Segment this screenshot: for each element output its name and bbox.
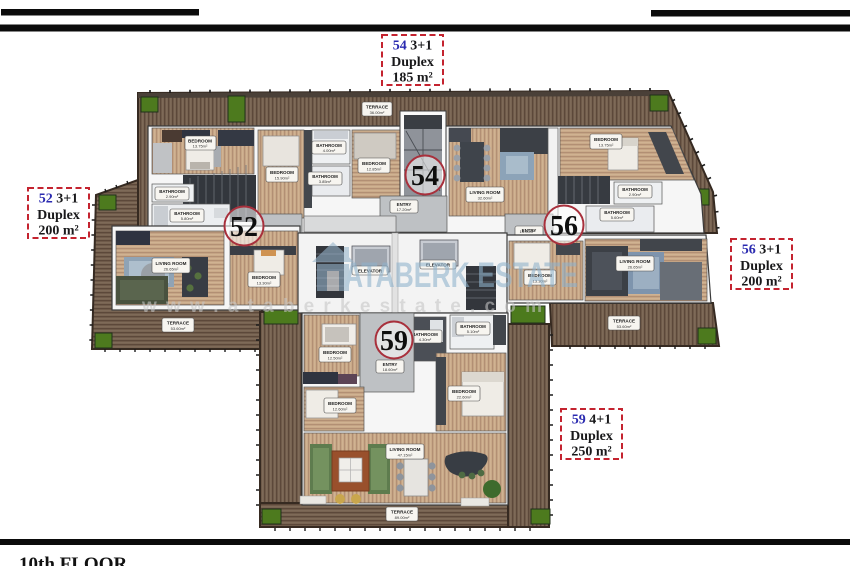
svg-text:12.50m²: 12.50m² [328, 356, 343, 361]
svg-text:Duplex: Duplex [570, 429, 613, 444]
svg-text:BEDROOM: BEDROOM [452, 389, 476, 394]
svg-text:32.60m²: 32.60m² [478, 196, 493, 201]
svg-text:BEDROOM: BEDROOM [328, 401, 352, 406]
svg-text:22.60m²: 22.60m² [457, 395, 472, 400]
svg-text:LIVING ROOM: LIVING ROOM [156, 261, 187, 266]
svg-text:Duplex: Duplex [391, 55, 434, 70]
svg-text:26.65m²: 26.65m² [164, 267, 179, 272]
svg-text:56 3+1: 56 3+1 [742, 243, 781, 258]
svg-text:59 4+1: 59 4+1 [572, 413, 611, 428]
svg-text:2.90m²: 2.90m² [166, 194, 179, 199]
svg-text:89.00m²: 89.00m² [395, 515, 410, 520]
svg-text:13.75m²: 13.75m² [599, 143, 614, 148]
svg-text:TERRACE: TERRACE [167, 321, 189, 326]
svg-text:59: 59 [380, 326, 408, 357]
svg-text:12.60m²: 12.60m² [333, 407, 348, 412]
svg-text:ATABERK ESTATE: ATABERK ESTATE [344, 256, 578, 295]
svg-text:LIVING ROOM: LIVING ROOM [620, 259, 651, 264]
svg-text:BEDROOM: BEDROOM [270, 170, 294, 175]
svg-text:18.60m²: 18.60m² [383, 367, 398, 372]
svg-text:LIVING ROOM: LIVING ROOM [470, 190, 501, 195]
svg-text:15.00m²: 15.00m² [520, 229, 535, 234]
svg-text:LIVING ROOM: LIVING ROOM [390, 447, 421, 452]
svg-text:52: 52 [230, 212, 258, 243]
svg-text:47.15m²: 47.15m² [398, 453, 413, 458]
svg-text:17.20m²: 17.20m² [397, 207, 412, 212]
svg-text:TERRACE: TERRACE [366, 105, 388, 110]
svg-text:53.60m²: 53.60m² [617, 324, 632, 329]
svg-text:4.30m²: 4.30m² [419, 337, 432, 342]
svg-text:13.30m²: 13.30m² [257, 281, 272, 286]
svg-text:12.85m²: 12.85m² [367, 167, 382, 172]
svg-text:10th FLOOR: 10th FLOOR [19, 554, 127, 566]
svg-text:Duplex: Duplex [740, 259, 783, 274]
svg-text:56: 56 [550, 211, 578, 242]
svg-text:200 m²: 200 m² [741, 275, 781, 290]
svg-text:13.75m²: 13.75m² [193, 144, 208, 149]
svg-text:Duplex: Duplex [37, 208, 80, 223]
svg-text:185 m²: 185 m² [392, 71, 432, 86]
svg-text:5.10m²: 5.10m² [467, 329, 480, 334]
svg-text:2.90m²: 2.90m² [629, 192, 642, 197]
svg-text:TERRACE: TERRACE [613, 319, 635, 324]
svg-text:BEDROOM: BEDROOM [594, 137, 618, 142]
svg-text:BEDROOM: BEDROOM [323, 350, 347, 355]
svg-text:53.60m²: 53.60m² [171, 326, 186, 331]
svg-text:54 3+1: 54 3+1 [393, 39, 432, 54]
svg-text:52 3+1: 52 3+1 [39, 192, 78, 207]
svg-text:5.80m²: 5.80m² [181, 216, 194, 221]
svg-text:3.85m²: 3.85m² [319, 179, 332, 184]
svg-text:54: 54 [411, 161, 439, 192]
svg-text:5.60m²: 5.60m² [611, 215, 624, 220]
svg-text:26.65m²: 26.65m² [628, 265, 643, 270]
svg-text:TERRACE: TERRACE [391, 510, 413, 515]
svg-text:36.00m²: 36.00m² [370, 110, 385, 115]
svg-text:250 m²: 250 m² [571, 445, 611, 460]
svg-text:4.00m²: 4.00m² [323, 148, 336, 153]
svg-text:200 m²: 200 m² [38, 224, 78, 239]
svg-text:BEDROOM: BEDROOM [362, 161, 386, 166]
svg-text:BEDROOM: BEDROOM [252, 275, 276, 280]
svg-text:15.90m²: 15.90m² [275, 176, 290, 181]
